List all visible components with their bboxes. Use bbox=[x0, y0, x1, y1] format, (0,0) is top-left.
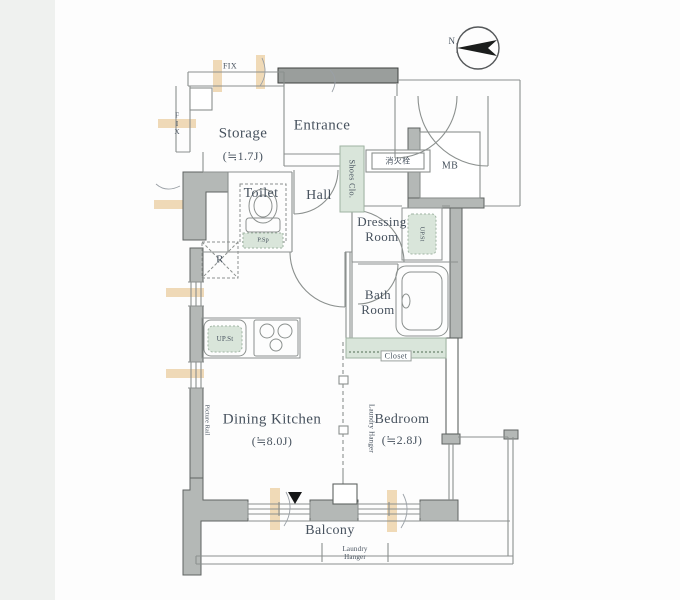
balcony-laundry-hanger-label: Laundry Hanger bbox=[332, 545, 378, 561]
room-label-bedroom: Bedroom bbox=[375, 412, 430, 428]
floor-plan-drawing bbox=[0, 0, 680, 600]
fix-window-label-left: FIX bbox=[173, 112, 181, 137]
bedroom-laundry-hanger-label: Laundry Hanger bbox=[367, 399, 376, 457]
meter-box-label: MB bbox=[442, 160, 458, 172]
washer-upper-storage-label: UP.St bbox=[418, 227, 425, 242]
room-label-balcony: Balcony bbox=[305, 523, 354, 539]
room-label-dining-kitchen: Dining Kitchen bbox=[223, 411, 322, 428]
bathtub-icon bbox=[396, 266, 448, 336]
room-label-toilet: Toilet bbox=[244, 186, 279, 202]
picture-rail-label: Picture Rail bbox=[203, 405, 210, 436]
shoes-closet-label: Shoes Clo. bbox=[347, 160, 356, 199]
toilet-pipe-space-label: P.Sp bbox=[257, 236, 268, 243]
room-label-bath-room: Bath Room bbox=[354, 288, 402, 318]
fire-hydrant-label: 消火栓 bbox=[385, 156, 410, 165]
room-label-entrance: Entrance bbox=[294, 117, 351, 134]
floor-plan: FIX FIX Storage (≒1.7J) Entrance Shoes C… bbox=[0, 0, 680, 600]
closet-label: Closet bbox=[381, 350, 412, 361]
room-size-bedroom: (≒2.8J) bbox=[382, 434, 423, 448]
fix-window-label-top: FIX bbox=[223, 61, 237, 70]
stove-icon bbox=[254, 320, 298, 356]
kitchen-upper-storage-label: UP.St bbox=[217, 335, 234, 343]
compass-icon bbox=[457, 27, 499, 69]
room-label-storage: Storage bbox=[219, 125, 268, 142]
room-label-dressing-room: Dressing Room bbox=[349, 215, 415, 245]
refrigerator-label: R bbox=[216, 254, 224, 267]
room-size-dining-kitchen: (≒8.0J) bbox=[252, 435, 293, 449]
room-size-storage: (≒1.7J) bbox=[223, 150, 264, 164]
compass-north-label: N bbox=[449, 36, 456, 46]
room-label-hall: Hall bbox=[306, 188, 332, 204]
entry-direction-marker bbox=[288, 492, 302, 504]
